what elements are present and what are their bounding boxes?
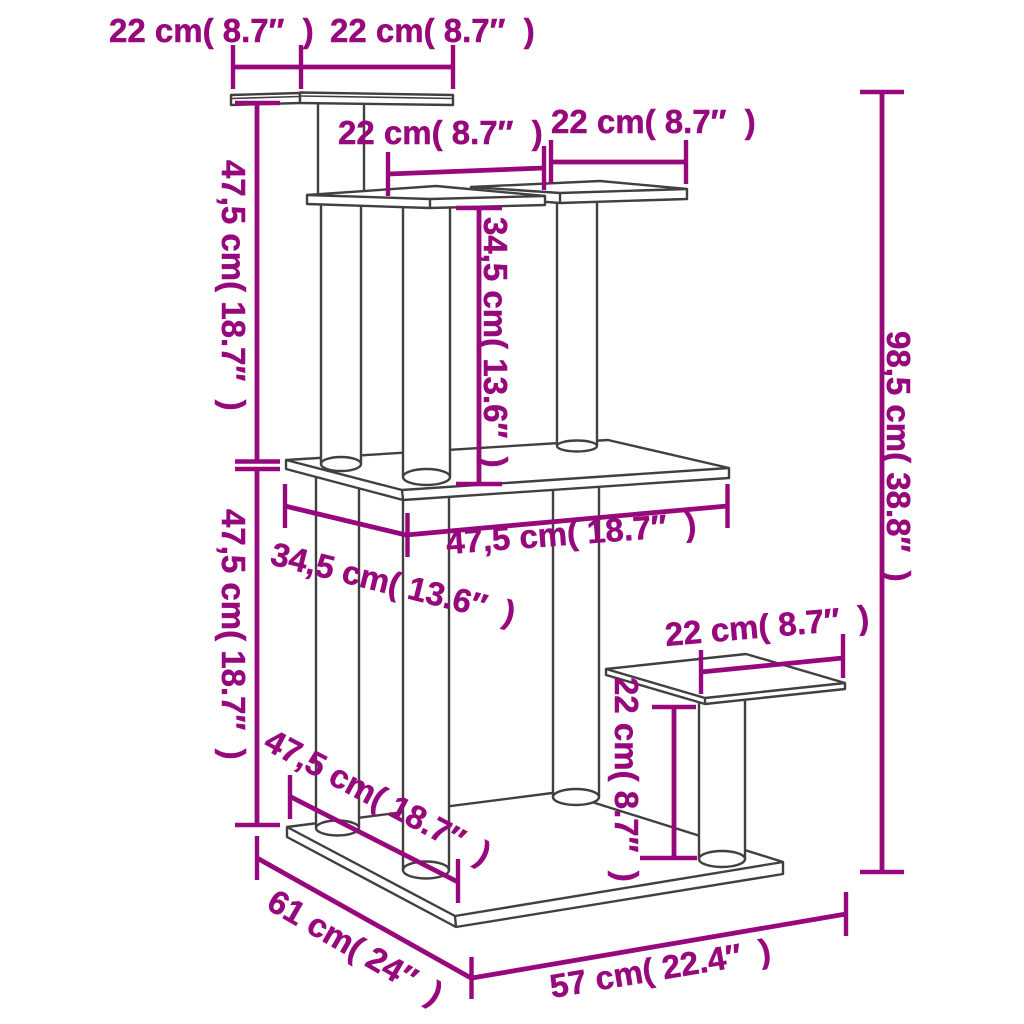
svg-text:47,5 cm( 18.7″ ): 47,5 cm( 18.7″ ) — [215, 160, 252, 411]
svg-text:22 cm( 8.7″ ): 22 cm( 8.7″ ) — [330, 12, 535, 49]
svg-text:22 cm( 8.7″ ): 22 cm( 8.7″ ) — [551, 103, 756, 140]
svg-text:47,5 cm( 18.7″ ): 47,5 cm( 18.7″ ) — [215, 509, 252, 760]
svg-text:22 cm( 8.7″ ): 22 cm( 8.7″ ) — [338, 114, 543, 151]
svg-text:34,5 cm( 13.6″ ): 34,5 cm( 13.6″ ) — [477, 217, 514, 468]
svg-text:22 cm( 8.7″ ): 22 cm( 8.7″ ) — [608, 677, 645, 882]
svg-text:22 cm( 8.7″ ): 22 cm( 8.7″ ) — [109, 12, 314, 49]
svg-text:98,5 cm( 38.8″ ): 98,5 cm( 38.8″ ) — [880, 331, 917, 582]
